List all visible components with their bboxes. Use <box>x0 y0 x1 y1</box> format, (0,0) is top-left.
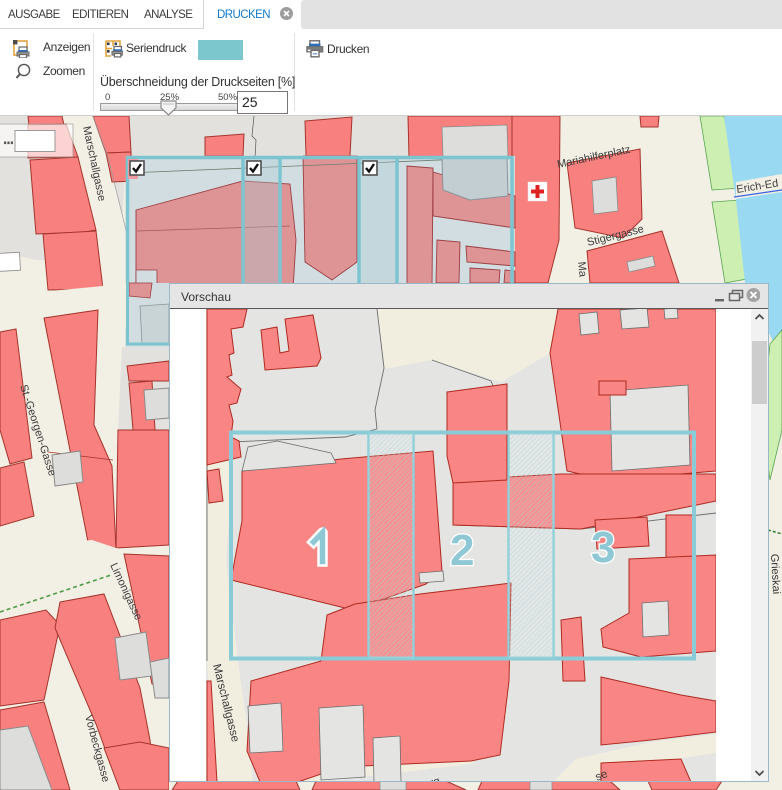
svg-text:3: 3 <box>591 523 615 572</box>
svg-text:2: 2 <box>450 526 474 575</box>
svg-text:Ma: Ma <box>575 261 589 278</box>
svg-text:Grieskai: Grieskai <box>768 554 782 595</box>
